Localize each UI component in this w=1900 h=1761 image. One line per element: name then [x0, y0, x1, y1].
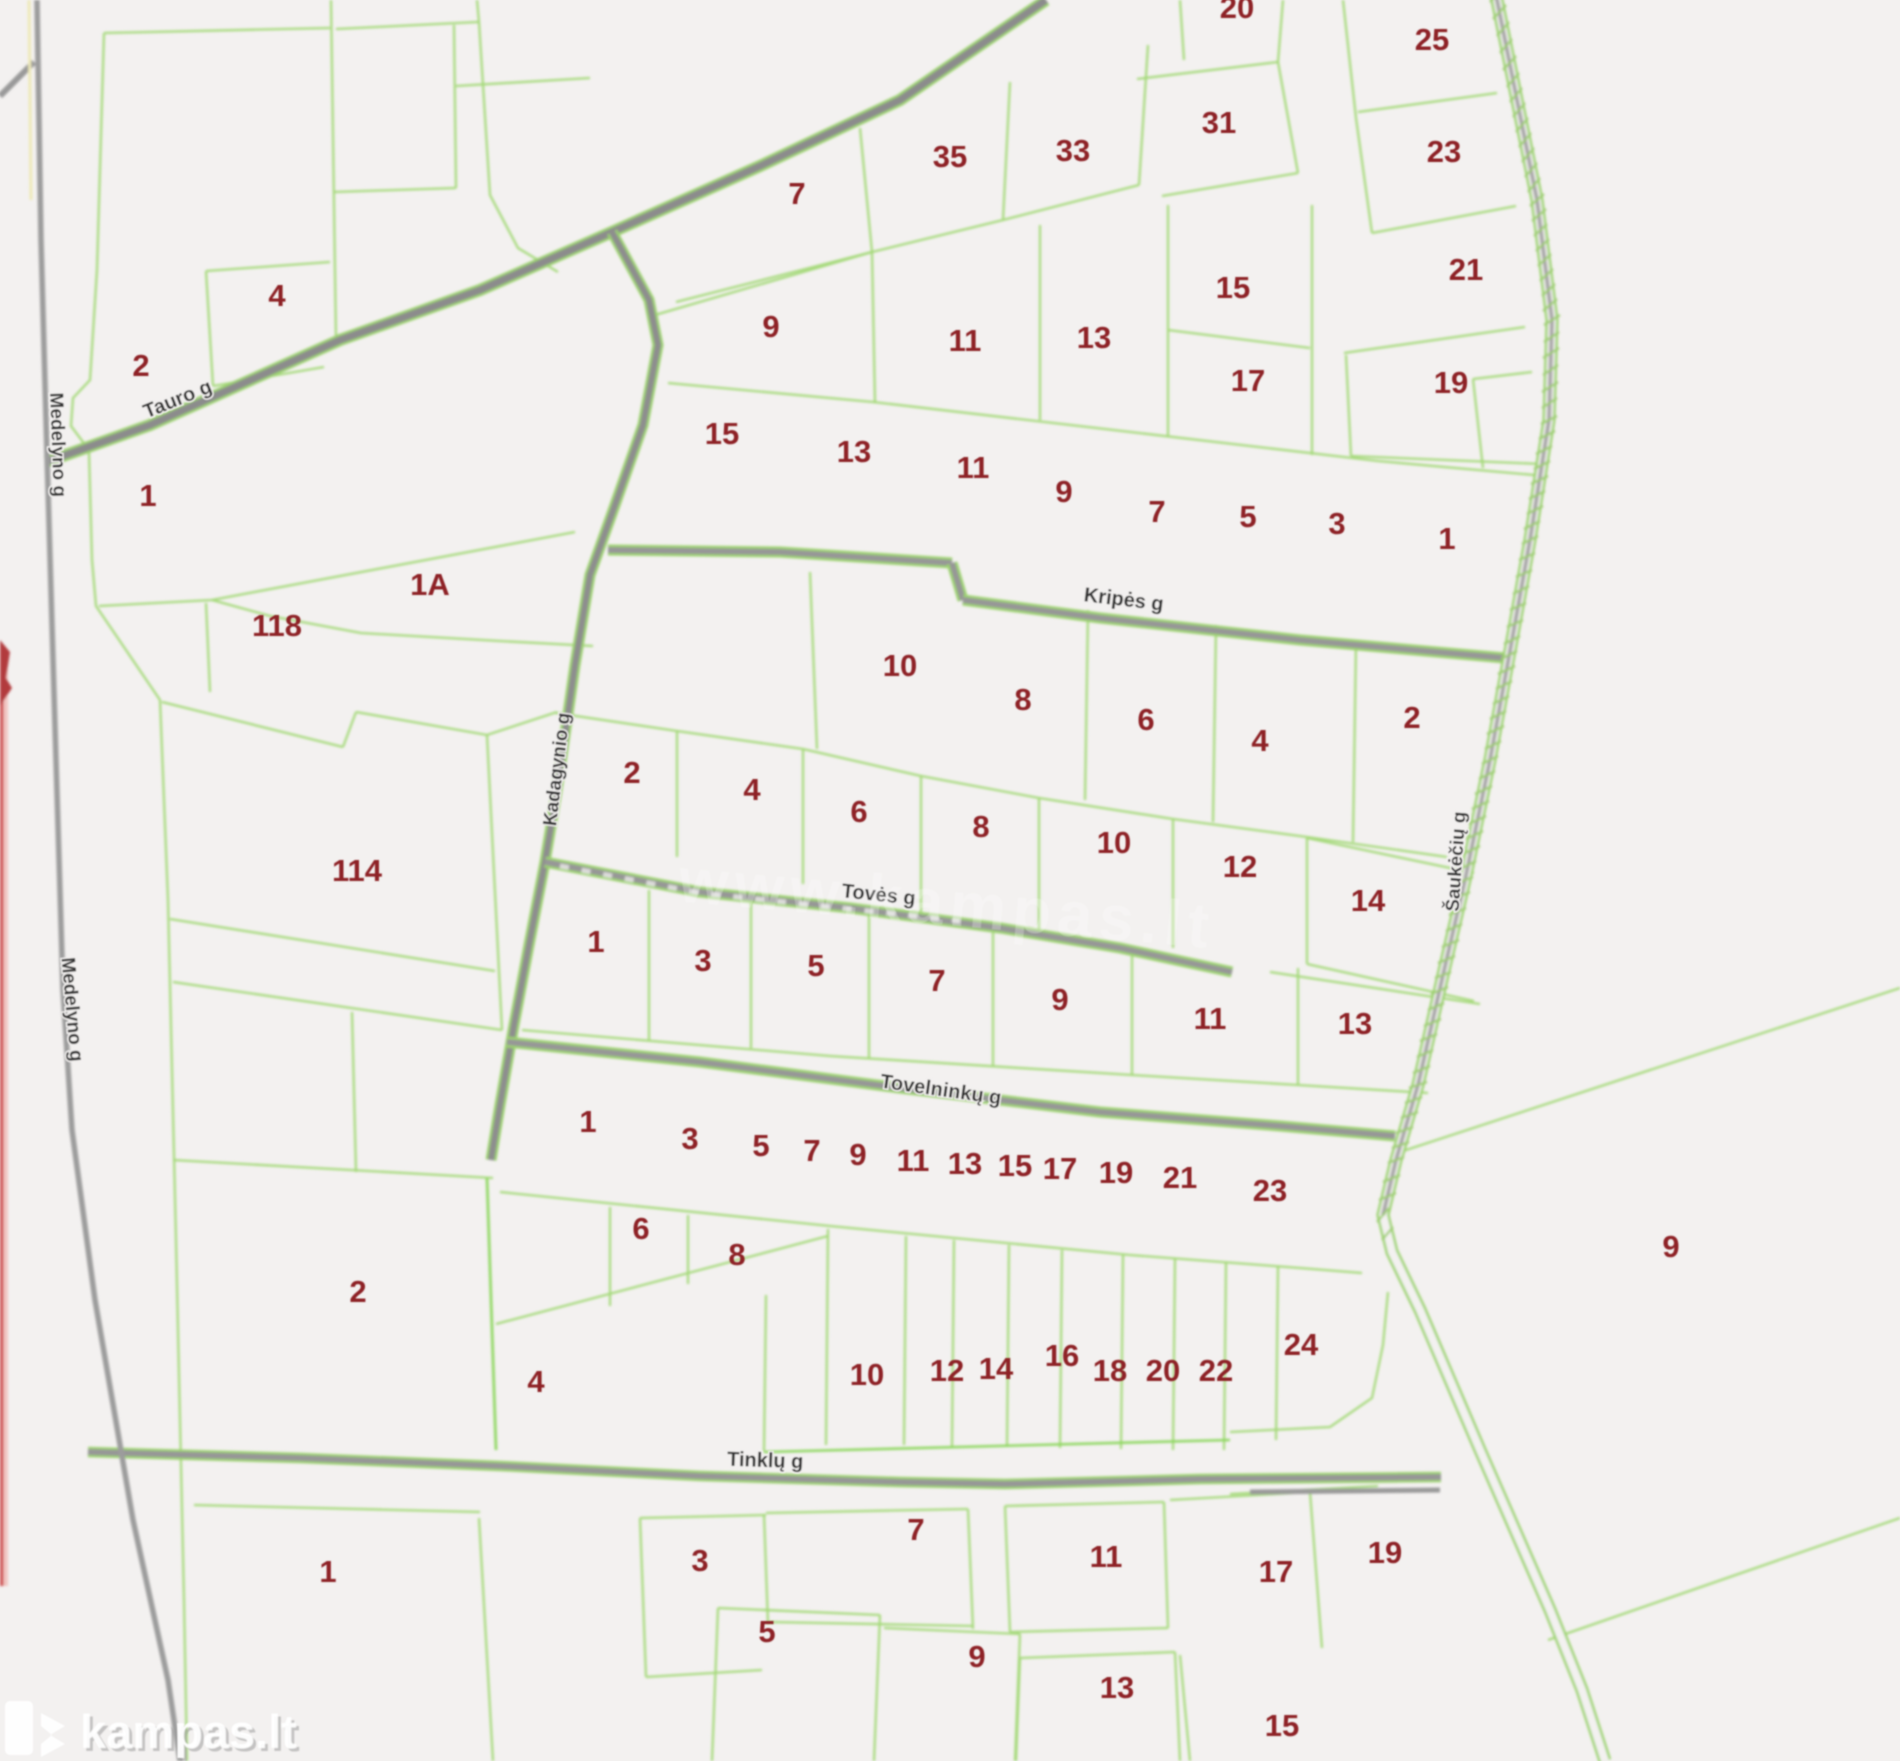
svg-text:13: 13 — [1077, 320, 1111, 355]
svg-text:24: 24 — [1284, 1327, 1319, 1362]
svg-text:6: 6 — [850, 794, 867, 829]
svg-text:15: 15 — [705, 416, 739, 451]
svg-text:13: 13 — [948, 1146, 982, 1181]
svg-text:19: 19 — [1368, 1535, 1402, 1570]
svg-text:4: 4 — [1251, 723, 1269, 758]
svg-text:10: 10 — [1097, 825, 1131, 860]
svg-text:31: 31 — [1202, 105, 1236, 140]
svg-text:10: 10 — [883, 648, 917, 683]
svg-text:20: 20 — [1146, 1353, 1180, 1388]
svg-text:Medelyno g: Medelyno g — [45, 392, 70, 497]
svg-text:9: 9 — [968, 1639, 985, 1674]
svg-text:4: 4 — [268, 278, 286, 313]
svg-text:11: 11 — [1090, 1539, 1123, 1574]
svg-text:12: 12 — [1223, 849, 1257, 884]
svg-text:11: 11 — [949, 323, 982, 358]
svg-text:5: 5 — [1239, 499, 1256, 534]
svg-text:15: 15 — [1216, 270, 1250, 305]
svg-text:Tinklų g: Tinklų g — [727, 1449, 804, 1474]
svg-text:21: 21 — [1449, 252, 1483, 287]
svg-text:10: 10 — [850, 1357, 884, 1392]
svg-text:3: 3 — [694, 943, 711, 978]
svg-text:9: 9 — [1051, 982, 1068, 1017]
svg-text:2: 2 — [349, 1274, 366, 1309]
svg-text:17: 17 — [1259, 1554, 1293, 1589]
svg-text:8: 8 — [972, 809, 989, 844]
svg-text:21: 21 — [1163, 1160, 1197, 1195]
svg-text:17: 17 — [1043, 1151, 1077, 1186]
svg-text:1: 1 — [1438, 521, 1455, 556]
svg-text:5: 5 — [807, 948, 824, 983]
svg-text:11: 11 — [1194, 1001, 1227, 1036]
svg-text:114: 114 — [332, 853, 383, 888]
svg-text:1: 1 — [319, 1554, 336, 1589]
svg-text:14: 14 — [979, 1351, 1014, 1386]
svg-text:9: 9 — [762, 309, 779, 344]
svg-text:16: 16 — [1045, 1338, 1079, 1373]
svg-text:7: 7 — [803, 1133, 820, 1168]
svg-text:1: 1 — [139, 478, 156, 513]
svg-text:9: 9 — [849, 1137, 866, 1172]
svg-text:19: 19 — [1434, 365, 1468, 400]
svg-text:8: 8 — [728, 1237, 745, 1272]
svg-text:9: 9 — [1662, 1229, 1679, 1264]
svg-text:7: 7 — [907, 1512, 924, 1547]
svg-text:6: 6 — [632, 1211, 649, 1246]
svg-text:15: 15 — [998, 1148, 1032, 1183]
svg-text:8: 8 — [1014, 682, 1031, 717]
svg-text:11: 11 — [897, 1143, 930, 1178]
svg-text:4: 4 — [527, 1364, 545, 1399]
svg-text:3: 3 — [1328, 506, 1345, 541]
svg-text:14: 14 — [1351, 883, 1386, 918]
svg-text:2: 2 — [1403, 700, 1420, 735]
svg-text:15: 15 — [1265, 1708, 1299, 1743]
svg-text:1: 1 — [579, 1104, 596, 1139]
svg-text:6: 6 — [1137, 702, 1154, 737]
svg-text:18: 18 — [1093, 1353, 1127, 1388]
svg-text:5: 5 — [758, 1614, 775, 1649]
svg-text:12: 12 — [930, 1353, 964, 1388]
svg-text:11: 11 — [957, 450, 990, 485]
svg-text:kampas.lt: kampas.lt — [80, 1705, 297, 1758]
svg-text:7: 7 — [1148, 494, 1165, 529]
svg-text:7: 7 — [928, 963, 945, 998]
svg-text:13: 13 — [1100, 1670, 1134, 1705]
svg-text:9: 9 — [1055, 474, 1072, 509]
svg-text:33: 33 — [1056, 133, 1090, 168]
svg-text:19: 19 — [1099, 1155, 1133, 1190]
svg-text:2: 2 — [132, 348, 149, 383]
svg-text:23: 23 — [1427, 134, 1461, 169]
svg-text:35: 35 — [933, 139, 967, 174]
svg-text:7: 7 — [788, 176, 805, 211]
svg-text:3: 3 — [681, 1121, 698, 1156]
svg-text:25: 25 — [1415, 22, 1449, 57]
svg-text:5: 5 — [752, 1128, 769, 1163]
svg-text:13: 13 — [837, 434, 871, 469]
svg-text:118: 118 — [252, 608, 302, 643]
svg-text:17: 17 — [1231, 363, 1265, 398]
svg-text:3: 3 — [691, 1543, 708, 1578]
svg-text:2: 2 — [623, 755, 640, 790]
svg-text:1: 1 — [587, 924, 604, 959]
svg-text:23: 23 — [1253, 1173, 1287, 1208]
svg-text:4: 4 — [743, 772, 761, 807]
svg-text:13: 13 — [1338, 1006, 1372, 1041]
svg-text:22: 22 — [1199, 1353, 1233, 1388]
svg-text:1A: 1A — [410, 567, 450, 602]
svg-text:20: 20 — [1220, 0, 1254, 25]
